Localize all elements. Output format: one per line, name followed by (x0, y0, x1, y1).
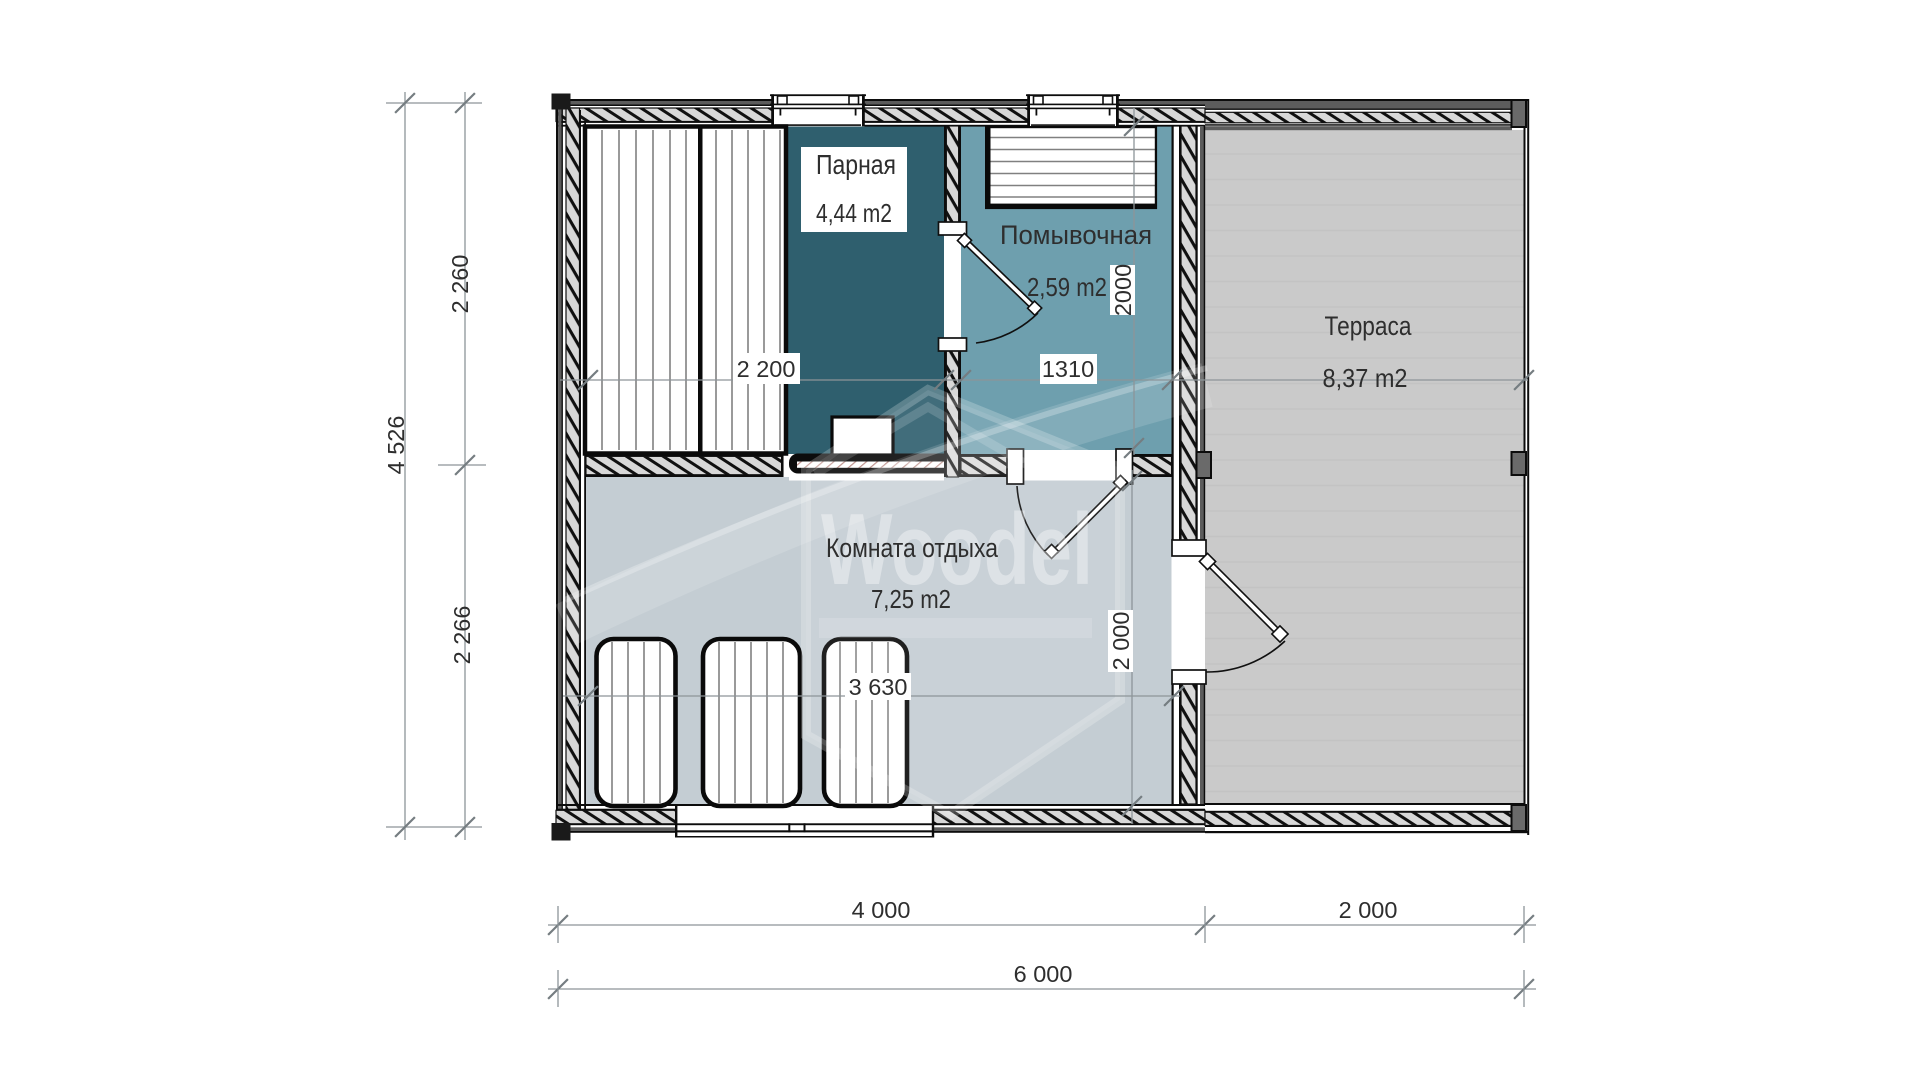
svg-text:7,25 m2: 7,25 m2 (871, 584, 951, 614)
svg-text:8,37 m2: 8,37 m2 (1323, 363, 1408, 393)
svg-text:Парная: Парная (816, 149, 896, 180)
svg-text:Помывочная: Помывочная (1000, 220, 1152, 250)
svg-text:2 000: 2 000 (1339, 897, 1398, 923)
svg-text:2 000: 2 000 (1108, 612, 1134, 671)
svg-text:4 000: 4 000 (852, 897, 911, 923)
svg-text:Комната отдыха: Комната отдыха (826, 533, 999, 563)
svg-text:2000: 2000 (1110, 264, 1136, 316)
svg-text:Терраса: Терраса (1325, 311, 1413, 341)
svg-text:2 200: 2 200 (737, 356, 796, 382)
svg-text:4,44 m2: 4,44 m2 (816, 198, 892, 228)
svg-text:1310: 1310 (1042, 356, 1094, 382)
svg-text:4 526: 4 526 (383, 416, 409, 475)
svg-text:6 000: 6 000 (1014, 961, 1073, 987)
svg-text:3 630: 3 630 (849, 674, 908, 700)
svg-text:2 260: 2 260 (447, 255, 473, 314)
svg-text:2,59 m2: 2,59 m2 (1027, 272, 1107, 302)
svg-text:2 266: 2 266 (449, 606, 475, 665)
